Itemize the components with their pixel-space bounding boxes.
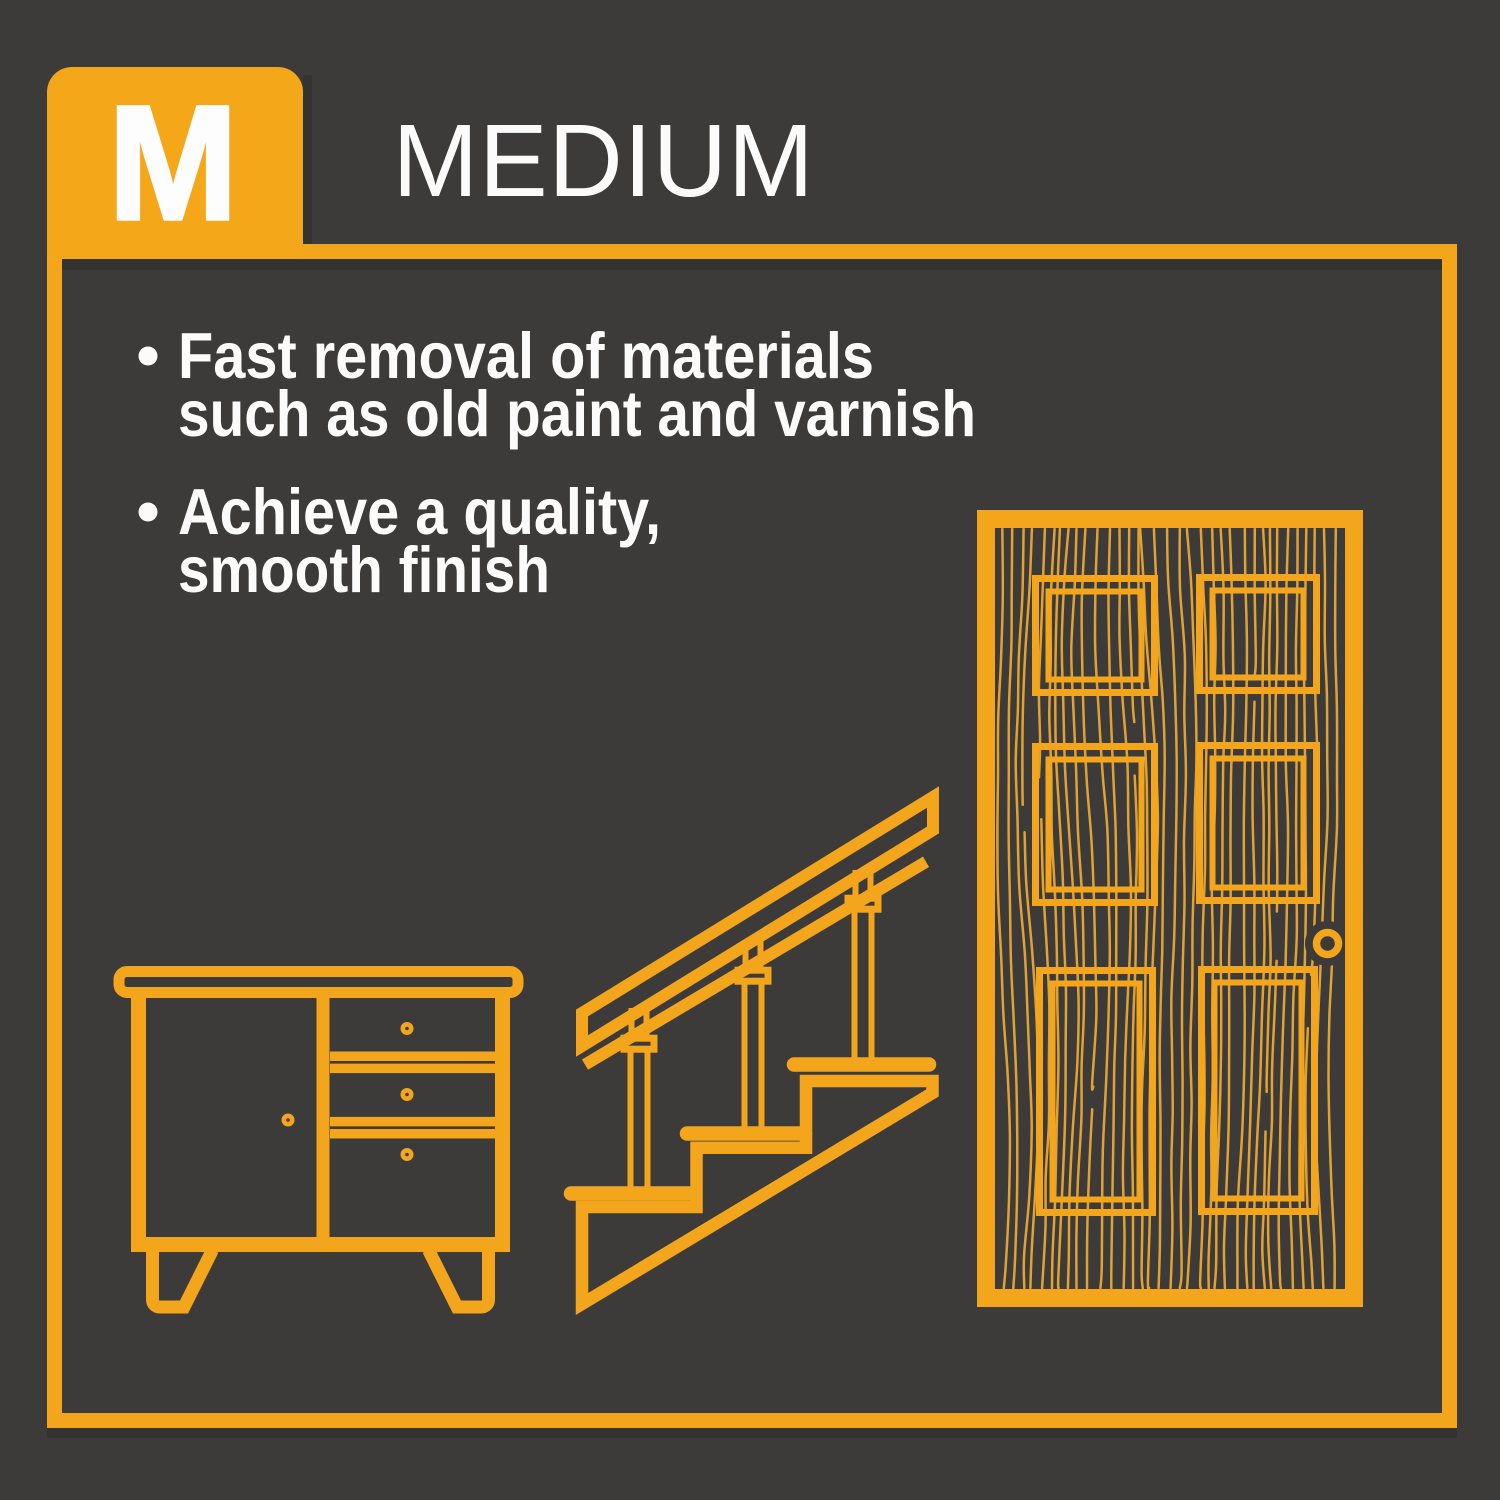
svg-text:MEDIUM: MEDIUM (393, 103, 815, 218)
svg-text:such as old paint and varnish: such as old paint and varnish (178, 377, 976, 450)
svg-text:M: M (108, 71, 238, 254)
svg-text:smooth finish: smooth finish (178, 533, 550, 606)
